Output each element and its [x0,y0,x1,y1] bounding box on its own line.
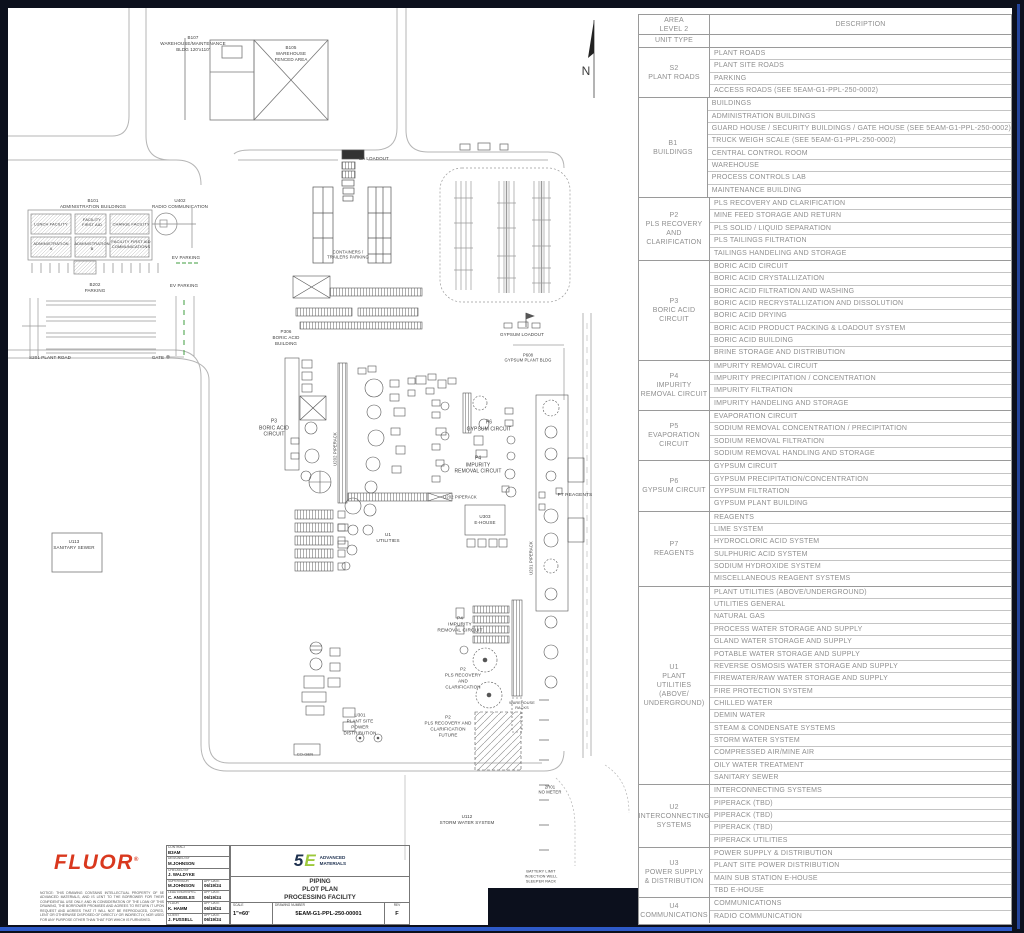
description-cell: STORM WATER SYSTEM [710,735,1011,747]
description-cell: PLS RECOVERY AND CLARIFICATION [710,198,1011,210]
description-rows: PLS RECOVERY AND CLARIFICATIONMINE FEED … [710,198,1011,260]
viewer-background: B107 WAREHOUSE/MAINTENANCE BLDG 120'x110… [0,0,1024,933]
description-cell: GUARD HOUSE / SECURITY BUILDINGS / GATE … [708,123,1011,135]
unit-type-empty [710,35,1011,47]
description-cell: BORIC ACID CRYSTALLIZATION [710,273,1011,285]
drawing-title: PIPING PLOT PLAN PROCESSING FACILITY [231,876,409,902]
plan-label-battery-limit: BATTERY LIMIT INJECTION WELL SLEEPER RAC… [525,870,558,885]
description-cell: ACCESS ROADS (SEE 5EAM-G1-PPL-250-0002) [710,85,1011,97]
description-cell: RADIO COMMUNICATION [710,911,1011,923]
plan-label-lunch-facility: LUNCH FACILITY [34,221,68,226]
titleblock-name-cell: LEAD ENGR/SPECC. ANGELES [167,891,202,901]
titleblock-row-value: B3AM [168,850,228,855]
description-cell: HYDROCLORIC ACID SYSTEM [710,536,1011,548]
description-cell: UTILITIES GENERAL [710,599,1011,611]
plan-label-p4-impurity-lower: P4 IMPURITY REMOVAL CIRCUIT [437,617,482,636]
titleblock-row-lead-engr-spec: LEAD ENGR/SPECC. ANGELESAPP DATE06/19/24 [167,891,229,902]
table-group-p2: P2 PLS RECOVERY AND CLARIFICATIONPLS REC… [639,198,1011,261]
titleblock-date-value: 06/19/24 [204,895,228,900]
description-cell: PROCESS CONTROLS LAB [708,172,1011,184]
plan-label-warehouse-racks: WAREHOUSE RACKS [509,701,535,711]
plan-label-u113-sanitary: U113 SANITARY SEWER [53,539,94,551]
description-cell: IMPURITY FILTRATION [710,385,1011,397]
plan-label-u303-ehouse: U303 E-HOUSE [474,514,495,526]
plan-label-b105: B105 WAREHOUSE FENCED AREA [275,45,308,63]
description-cell: BORIC ACID FILTRATION AND WASHING [710,286,1011,298]
titleblock-row-contract: CONTRACTB3AM [167,846,229,857]
description-cell: ADMINISTRATION BUILDINGS [708,111,1011,123]
description-cell: IMPURITY HANDELING AND STORAGE [710,398,1011,410]
titleblock-date-cell: APP DATE06/19/24 [202,880,229,890]
plan-label-b107: B107 WAREHOUSE/MAINTENANCE BLDG 120'x110… [160,35,225,53]
plan-label-u202-piperack-v: U202 PIPERACK [332,432,337,466]
registered-mark-icon: ® [134,857,140,863]
table-group-p3: P3 BORIC ACID CIRCUITBORIC ACID CIRCUITB… [639,261,1011,361]
rev-label: REV [387,904,407,908]
titleblock-row-fluor: FLUORK. HAMMAPP DATE06/19/24 [167,902,229,913]
titleblock-name-cell: CLIENTJ. FUSSELL [167,914,202,924]
titleblock-row-client: CLIENTJ. FUSSELLAPP DATE06/19/24 [167,914,229,924]
description-cell: IMPURITY PRECIPITATION / CONCENTRATION [710,373,1011,385]
description-rows: BUILDINGSADMINISTRATION BUILDINGSGUARD H… [708,98,1011,197]
description-cell: SODIUM HYDROXIDE SYSTEM [710,561,1011,573]
title-block: FLUOR® NOTICE: THIS DRAWING CONTAINS INT… [40,845,420,925]
description-cell: MISCELLANEOUS REAGENT SYSTEMS [710,573,1011,585]
description-cell: STEAM & CONDENSATE SYSTEMS [710,723,1011,735]
plan-label-b202-parking: B202 PARKING [85,282,106,294]
titleblock-row-checked-by: CHECKED BYJ. WALDYKE [167,869,229,880]
plan-label-p7-reagents: P7 REAGENTS [558,493,593,499]
table-group-p7: P7 REAGENTSREAGENTSLIME SYSTEMHYDROCLORI… [639,512,1011,587]
description-cell: BORIC ACID CIRCUIT [710,261,1011,273]
description-cell: MAINTENANCE BUILDING [708,185,1011,197]
scale-cell: SCALE 1"=60' [231,903,273,926]
description-rows: IMPURITY REMOVAL CIRCUITIMPURITY PRECIPI… [710,361,1011,410]
header-description: DESCRIPTION [710,15,1011,34]
titleblock-row-value: J. WALDYKE [168,872,228,877]
plan-label-north-letter: N [582,64,591,80]
drawing-number-cell: DRAWING NUMBER 5EAM-G1-PPL-250-00001 [273,903,385,926]
description-cell: NATURAL GAS [710,611,1011,623]
unit-type-cell: P7 REAGENTS [639,512,710,586]
description-cell: SANITARY SEWER [710,772,1011,784]
titleblock-name-cell: DESIGNED BYM.JOHNSON [167,857,229,867]
titleblock-row-value: M.JOHNSON [168,883,201,888]
unit-type-cell: U3 POWER SUPPLY & DISTRIBUTION [639,848,710,897]
description-cell: GYPSUM CIRCUIT [710,461,1011,473]
description-cell: MINE FEED STORAGE AND RETURN [710,210,1011,222]
fluor-logo: FLUOR® [54,851,140,875]
area-table-body: S2 PLANT ROADSPLANT ROADSPLANT SITE ROAD… [639,48,1011,924]
description-cell: TAILINGS HANDELING AND STORAGE [710,248,1011,260]
titleblock-name-cell: SUPERVISORM.JOHNSON [167,880,202,890]
plan-label-gate: GATE [152,355,164,361]
notice-text: NOTICE: THIS DRAWING CONTAINS INTELLECTU… [40,891,164,922]
plan-label-administration-b: ADMINISTRATION B [74,241,109,251]
brand-e-glyph: E [304,851,315,871]
description-cell: BUILDINGS [708,98,1011,110]
plan-label-change-facility: CHANGE FACILITY [112,221,149,226]
plan-label-p306-boric-bldg: P306 BORIC ACID BUILDING [272,329,299,347]
titleblock-name-cell: CONTRACTB3AM [167,846,229,856]
plan-label-u201-piperack-v: U201 PIPERACK [528,541,533,575]
unit-type-cell: P6 GYPSUM CIRCUIT [639,461,710,510]
5e-advanced-materials-logo: 5E ADVANCED MATERIALS [231,846,409,876]
description-cell: COMMUNICATIONS [710,898,1011,910]
scale-label: SCALE [233,904,270,908]
titleblock-row-value: J. FUSSELL [168,917,201,922]
unit-type-cell: U2 INTERCONNECTING SYSTEMS [639,785,710,847]
description-cell: WAREHOUSE [708,160,1011,172]
plan-label-no-meter: 2R01 NO METER [539,785,562,796]
description-rows: BORIC ACID CIRCUITBORIC ACID CRYSTALLIZA… [710,261,1011,360]
unit-type-cell: B1 BUILDINGS [639,98,708,197]
plan-label-ba-loadout: BA LOADOUT [359,156,389,162]
table-group-p4: P4 IMPURITY REMOVAL CIRCUITIMPURITY REMO… [639,361,1011,411]
description-cell: MAIN SUB STATION E-HOUSE [710,873,1011,885]
titleblock-row-value: K. HAMM [168,906,201,911]
table-group-u1: U1 PLANT UTILITIES (ABOVE/ UNDERGROUND)P… [639,587,1011,786]
unit-type-cell: P3 BORIC ACID CIRCUIT [639,261,710,360]
plan-label-p3-circuit: P3 BORIC ACID CIRCUIT [259,418,289,438]
unit-type-row: UNIT TYPE [639,35,1011,48]
description-rows: COMMUNICATIONSRADIO COMMUNICATION [710,898,1011,923]
plan-label-gypsum-loadout: GYPSUM LOADOUT [500,332,544,338]
plan-label-ev-parking-2: EV PARKING [170,283,198,289]
plan-label-p6-gypsum: P6 GYPSUM CIRCUIT [467,420,512,433]
titleblock-date-cell: APP DATE06/19/24 [202,902,229,912]
table-group-p5: P5 EVAPORATION CIRCUITEVAPORATION CIRCUI… [639,411,1011,461]
table-group-s2: S2 PLANT ROADSPLANT ROADSPLANT SITE ROAD… [639,48,1011,98]
drawing-sheet: B107 WAREHOUSE/MAINTENANCE BLDG 120'x110… [8,8,1012,925]
plan-label-u112-storm: U112 STORM WATER SYSTEM [440,814,495,826]
area-table: AREA LEVEL 2 DESCRIPTION UNIT TYPE S2 PL… [638,14,1012,925]
plan-label-p608-gypsum-bldg: P608 GYPSUM PLANT BLDG [505,353,552,364]
plan-label-p2-future: P2 PLS RECOVERY AND CLARIFICATION FUTURE [425,714,472,737]
bottom-accent-line [0,927,1024,931]
description-cell: GYPSUM FILTRATION [710,486,1011,498]
description-cell: GYPSUM PRECIPITATION/CONCENTRATION [710,474,1011,486]
description-cell: GLAND WATER STORAGE AND SUPPLY [710,636,1011,648]
titleblock-date-value: 06/19/24 [204,883,228,888]
titleblock-date-value: 06/19/24 [204,917,228,922]
titleblock-bottom-row: SCALE 1"=60' DRAWING NUMBER 5EAM-G1-PPL-… [231,902,409,926]
description-cell: CENTRAL CONTROL ROOM [708,148,1011,160]
unit-type-cell: S2 PLANT ROADS [639,48,710,97]
plan-label-b101: B101 ADMINISTRATION BUILDINGS [60,198,126,210]
description-cell: PIPERACK (TBD) [710,822,1011,834]
description-rows: PLANT ROADSPLANT SITE ROADSPARKINGACCESS… [710,48,1011,97]
description-cell: BORIC ACID BUILDING [710,335,1011,347]
description-cell: EVAPORATION CIRCUIT [710,411,1011,423]
description-cell: POTABLE WATER STORAGE AND SUPPLY [710,649,1011,661]
description-cell: FIRE PROTECTION SYSTEM [710,686,1011,698]
titleblock-name-cell: CHECKED BYJ. WALDYKE [167,869,229,879]
drawing-number-label: DRAWING NUMBER [275,904,382,908]
titleblock-main: 5E ADVANCED MATERIALS PIPING PLOT PLAN P… [230,845,410,925]
plan-label-facility-communications: FACILITY FIRST AID COMMUNICATIONS [111,239,150,249]
brand-name: ADVANCED MATERIALS [320,855,346,866]
description-cell: PIPERACK UTILITIES [710,835,1011,847]
description-cell: PLANT SITE ROADS [710,60,1011,72]
description-cell: TBD E-HOUSE [710,885,1011,897]
unit-type-cell: P2 PLS RECOVERY AND CLARIFICATION [639,198,710,260]
plan-labels: B107 WAREHOUSE/MAINTENANCE BLDG 120'x110… [8,8,636,925]
description-cell: OILY WATER TREATMENT [710,760,1011,772]
area-table-header: AREA LEVEL 2 DESCRIPTION [639,15,1011,35]
description-cell: LIME SYSTEM [710,524,1011,536]
description-cell: IMPURITY REMOVAL CIRCUIT [710,361,1011,373]
description-cell: REVERSE OSMOSIS WATER STORAGE AND SUPPLY [710,661,1011,673]
description-cell: PIPERACK (TBD) [710,798,1011,810]
rev-cell: REV F [385,903,409,926]
description-cell: BORIC ACID PRODUCT PACKING & LOADOUT SYS… [710,323,1011,335]
right-accent-line [1017,4,1020,929]
description-cell: PLS TAILINGS FILTRATION [710,235,1011,247]
description-cell: FIREWATER/RAW WATER STORAGE AND SUPPLY [710,673,1011,685]
plan-label-u1-utilities: U1 UTILITIES [376,533,399,545]
plan-label-u301-power: U301 PLANT SITE POWER DISTRIBUTION [344,712,377,735]
unit-type-cell: U1 PLANT UTILITIES (ABOVE/ UNDERGROUND) [639,587,710,785]
description-cell: BRINE STORAGE AND DISTRIBUTION [710,347,1011,359]
table-group-u2: U2 INTERCONNECTING SYSTEMSINTERCONNECTIN… [639,785,1011,848]
description-cell: POWER SUPPLY & DISTRIBUTION [710,848,1011,860]
titleblock-name-cell: FLUORK. HAMM [167,902,202,912]
description-cell: SODIUM REMOVAL FILTRATION [710,436,1011,448]
description-rows: POWER SUPPLY & DISTRIBUTIONPLANT SITE PO… [710,848,1011,897]
unit-type-label: UNIT TYPE [639,35,710,47]
description-cell: BORIC ACID DRYING [710,310,1011,322]
plan-label-u402: U402 RADIO COMMUNICATION [152,198,208,210]
table-group-b1: B1 BUILDINGSBUILDINGSADMINISTRATION BUIL… [639,98,1011,198]
description-cell: PLANT SITE POWER DISTRIBUTION [710,860,1011,872]
plan-label-facility-first-aid: FACILITY FIRST AID [82,217,102,227]
description-cell: INTERCONNECTING SYSTEMS [710,785,1011,797]
description-cell: CHILLED WATER [710,698,1011,710]
table-group-p6: P6 GYPSUM CIRCUITGYPSUM CIRCUITGYPSUM PR… [639,461,1011,511]
titleblock-row-supervisor: SUPERVISORM.JOHNSONAPP DATE06/19/24 [167,880,229,891]
description-cell: COMPRESSED AIR/MINE AIR [710,747,1011,759]
plan-label-containers: CONTAINERS / TRAILERS PARKING [327,250,369,261]
header-area-level: AREA LEVEL 2 [639,15,710,34]
plan-label-p4-impurity-upper: P4 IMPURITY REMOVAL CIRCUIT [454,455,501,475]
titleblock-row-value: M.JOHNSON [168,861,228,866]
rev-value: F [387,911,407,917]
table-group-u3: U3 POWER SUPPLY & DISTRIBUTIONPOWER SUPP… [639,848,1011,898]
description-rows: INTERCONNECTING SYSTEMSPIPERACK (TBD)PIP… [710,785,1011,847]
description-rows: REAGENTSLIME SYSTEMHYDROCLORIC ACID SYST… [710,512,1011,586]
plan-label-administration-a: ADMINISTRATION A [33,241,68,251]
description-cell: SODIUM REMOVAL CONCENTRATION / PRECIPITA… [710,423,1011,435]
unit-type-cell: P4 IMPURITY REMOVAL CIRCUIT [639,361,710,410]
description-cell: TRUCK WEIGH SCALE (SEE 5EAM-G1-PPL-250-0… [708,135,1011,147]
titleblock-date-cell: APP DATE06/19/24 [202,914,229,924]
description-rows: EVAPORATION CIRCUITSODIUM REMOVAL CONCEN… [710,411,1011,460]
unit-type-cell: U4 COMMUNICATIONS [639,898,710,923]
description-cell: PARKING [710,73,1011,85]
table-group-u4: U4 COMMUNICATIONSCOMMUNICATIONSRADIO COM… [639,898,1011,923]
description-rows: PLANT UTILITIES (ABOVE/UNDERGROUND)UTILI… [710,587,1011,785]
unit-type-cell: P5 EVAPORATION CIRCUIT [639,411,710,460]
personnel-rows: CONTRACTB3AMDESIGNED BYM.JOHNSONCHECKED … [166,845,230,925]
plan-label-p2-pls: P2 PLS RECOVERY AND CLARIFICATION [445,666,481,689]
scale-value: 1"=60' [233,911,270,917]
titleblock-row-designed-by: DESIGNED BYM.JOHNSON [167,857,229,868]
plan-label-ev-parking-1: EV PARKING [172,255,200,261]
plan-label-s201-plant-road: S201 PLANT ROAD [29,355,71,361]
description-cell: SULPHURIC ACID SYSTEM [710,549,1011,561]
plot-plan: B107 WAREHOUSE/MAINTENANCE BLDG 120'x110… [8,8,636,925]
titleblock-row-value: C. ANGELES [168,895,201,900]
description-cell: GYPSUM PLANT BUILDING [710,498,1011,510]
description-cell: BORIC ACID RECRYSTALLIZATION AND DISSOLU… [710,298,1011,310]
description-cell: PROCESS WATER STORAGE AND SUPPLY [710,624,1011,636]
titleblock-date-cell: APP DATE06/19/24 [202,891,229,901]
description-cell: PLS SOLID / LIQUID SEPARATION [710,223,1011,235]
description-cell: PLANT ROADS [710,48,1011,60]
brand-5-glyph: 5 [294,851,303,871]
plan-label-co-gen: CO-GEN [297,751,314,756]
drawing-number-value: 5EAM-G1-PPL-250-00001 [275,911,382,917]
description-rows: GYPSUM CIRCUITGYPSUM PRECIPITATION/CONCE… [710,461,1011,510]
titleblock-date-value: 06/19/24 [204,906,228,911]
plan-label-u202-piperack-h: U202 PIPERACK [443,494,477,499]
description-cell: PLANT UTILITIES (ABOVE/UNDERGROUND) [710,587,1011,599]
description-cell: DEMIN WATER [710,710,1011,722]
description-cell: PIPERACK (TBD) [710,810,1011,822]
description-cell: SODIUM REMOVAL HANDLING AND STORAGE [710,448,1011,460]
description-cell: REAGENTS [710,512,1011,524]
